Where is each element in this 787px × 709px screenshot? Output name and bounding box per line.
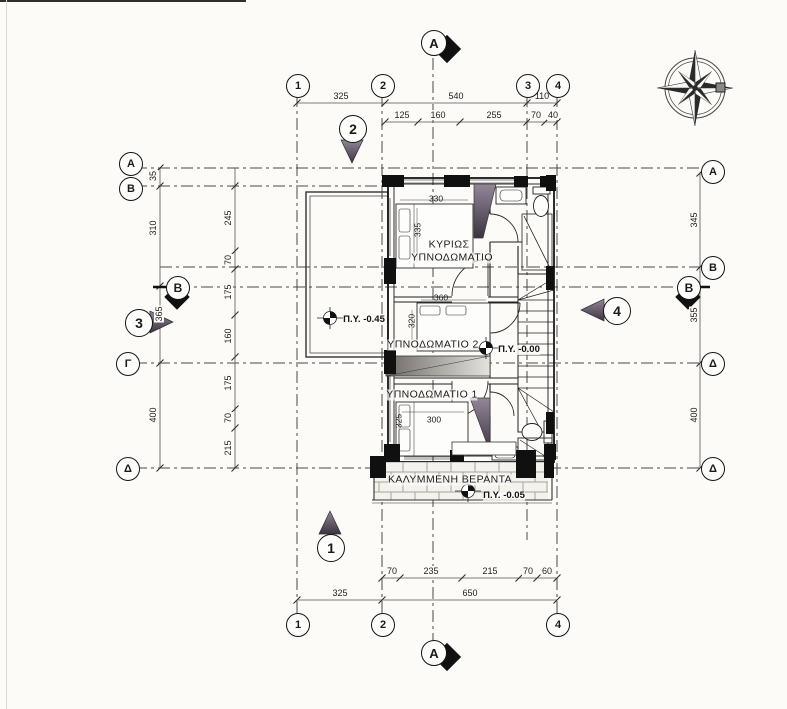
dim-label: 540 [447,91,464,101]
grid-label: Δ [709,358,717,370]
dim-label: 310 [148,219,158,236]
level-label-terrace: Π.Υ. -0.45 [343,315,385,325]
level-label-hall: Π.Υ. -0.00 [498,345,540,355]
threshold-step [452,442,516,455]
section-marker-2: 2 [339,115,367,143]
dim-label: 215 [223,439,233,456]
dim-label: 325 [332,91,349,101]
scan-edge-left [6,0,7,709]
section-label: A [429,36,438,51]
grid-bubble-right-Delta-1: Δ [701,352,725,376]
grid-bubble-bottom-4: 4 [546,613,570,637]
section-marker-A-bottom: A [421,640,447,666]
grid-label: 1 [295,619,301,631]
dim-label: 160 [223,327,233,344]
section-marker-3: 3 [125,309,153,337]
section-label: 1 [327,540,335,556]
wardrobe-master [474,184,496,238]
grid-label: Γ [125,358,132,370]
grid-bubble-bottom-2: 2 [371,613,395,637]
dim-label: 355 [689,306,699,323]
level-label-veranda: Π.Υ. -0.05 [483,491,525,501]
dim-label: 35 [148,170,158,182]
section-label: 2 [349,121,357,137]
grid-label: A [709,166,717,178]
grid-label: B [127,183,135,195]
dim-label: 70 [530,110,542,120]
dim-label: 175 [223,283,233,300]
grid-label: 4 [555,619,561,631]
grid-label: B [709,262,717,274]
grid-bubble-right-Delta-2: Δ [701,457,725,481]
grid-label: A [127,158,135,170]
toilet-top-bowl [534,196,549,217]
furniture-dim-label: 320 [408,314,417,328]
dim-label: 365 [154,305,164,322]
section-marker-B-right: B [677,276,701,300]
dimension-lines [157,100,704,604]
dim-label: 125 [393,110,410,120]
grid-bubble-right-B: B [701,256,725,280]
dim-label: 60 [541,566,553,576]
grid-label: 4 [555,80,561,92]
grid-bubble-left-Delta: Δ [116,457,140,481]
grid-bubble-left-A: A [119,152,143,176]
dim-label: 400 [148,406,158,423]
grid-bubble-bottom-1: 1 [286,613,310,637]
grid-label: 2 [380,619,386,631]
dim-label: 245 [223,209,233,226]
level-marker-terrace [317,307,343,329]
dim-label: 160 [429,110,446,120]
dim-label: 215 [481,566,498,576]
room-label-bedroom2: ΥΠΝΟΔΩΜΑΤΙΟ 2 [387,340,478,351]
section-label: A [429,646,438,661]
grid-label: 3 [525,80,531,92]
grid-bubble-top-2: 2 [371,74,395,98]
dim-label: 70 [223,254,233,266]
furniture-dim-label: 300 [427,416,441,425]
dim-label: 70 [223,412,233,424]
dim-label: 255 [485,110,502,120]
dim-label: 325 [331,588,348,598]
room-label-veranda: ΚΑΛΥΜΜΕΝΗ ΒΕΡΑΝΤΑ [388,475,512,486]
furniture-dim-label: 335 [414,223,423,237]
section-marker-B-left: B [166,276,190,300]
grid-bubble-top-3: 3 [516,74,540,98]
room-label-master-line1: ΚΥΡΙΩΣ [429,240,470,251]
grid-bubble-left-Gamma: Γ [116,352,140,376]
furniture-dim-label: 330 [429,195,443,204]
section-label: 4 [613,303,621,319]
grid-bubble-top-1: 1 [286,74,310,98]
dim-label: 345 [689,211,699,228]
room-label-master-line2: ΥΠΝΟΔΩΜΑΤΙΟ [411,253,493,264]
grid-bubble-right-A: A [701,160,725,184]
dim-label: 175 [223,374,233,391]
section-label: 3 [135,315,143,331]
dim-label: 70 [386,566,398,576]
dim-label: 40 [547,110,559,120]
terrace-outline [306,192,388,357]
section-marker-A-top: A [421,30,447,56]
dim-label: 400 [689,406,699,423]
grid-bubble-top-4: 4 [546,74,570,98]
dim-label: 650 [461,588,478,598]
section-label: B [174,281,183,295]
grid-label: 1 [295,80,301,92]
dim-label: 70 [522,566,534,576]
room-label-bedroom1: ΥΠΝΟΔΩΜΑΤΙΟ 1 [386,390,477,401]
dim-label: 235 [422,566,439,576]
compass-rose-icon [657,50,733,126]
plan-linework [0,0,787,709]
grid-bubble-left-B: B [119,177,143,201]
grid-label: 2 [380,80,386,92]
section-marker-1: 1 [317,534,345,562]
floor-plan-sheet: 1 2 3 4 1 2 4 A B Γ Δ A B Δ Δ A A 2 1 3 … [0,0,787,709]
section-label: B [685,281,694,295]
section-marker-4: 4 [603,297,631,325]
furniture-dim-label: 325 [395,414,404,428]
grid-label: Δ [709,463,717,475]
furniture-dim-label: 360 [434,294,448,303]
grid-label: Δ [124,463,132,475]
scan-edge-top [0,0,246,2]
compass-east-tab [716,83,725,92]
